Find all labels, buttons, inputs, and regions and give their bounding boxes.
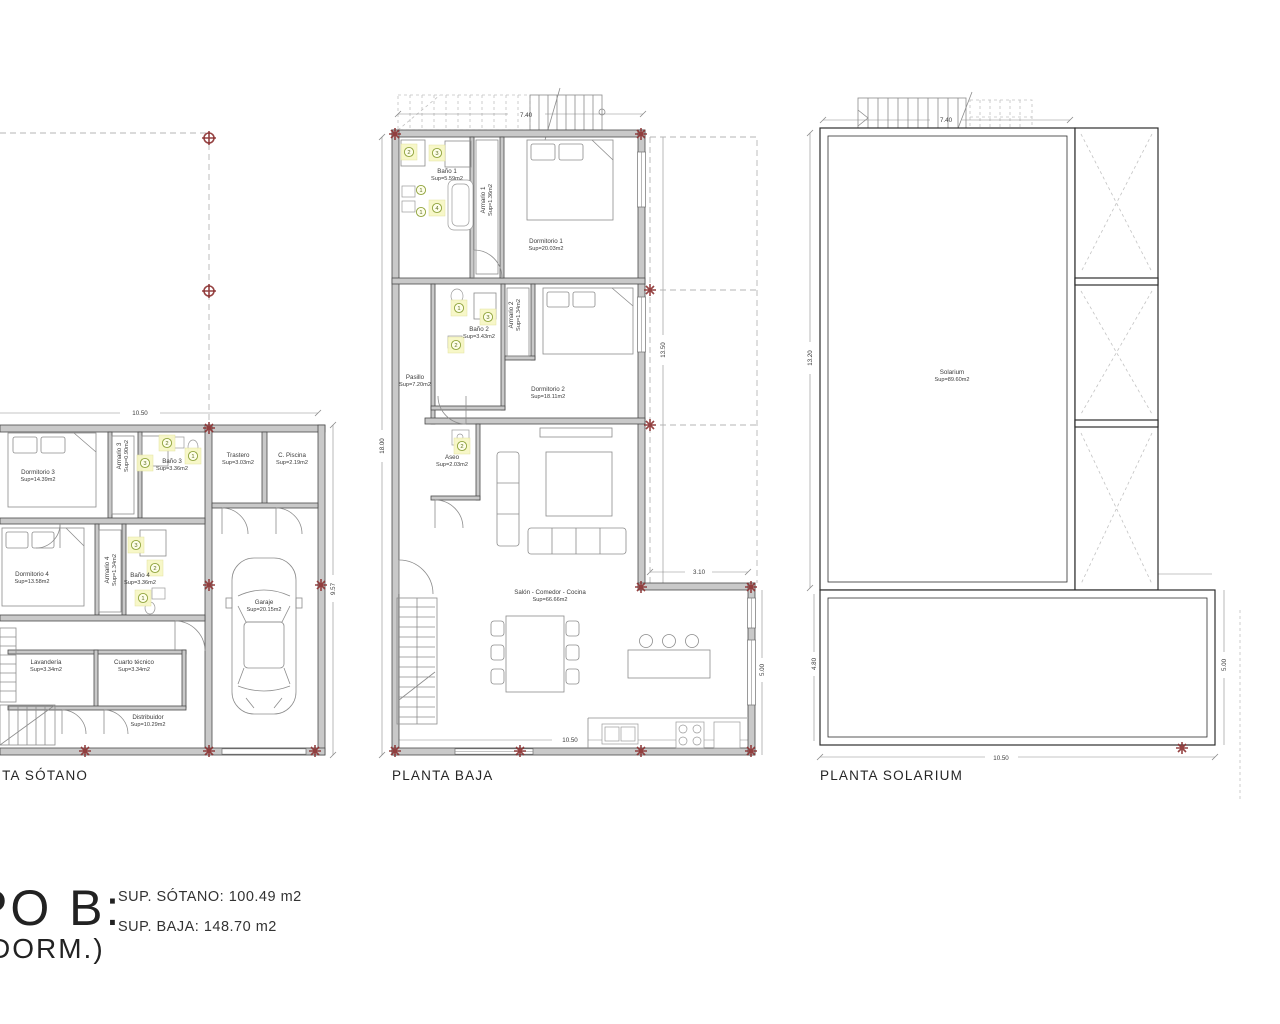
room-label: Dormitorio 2 xyxy=(531,386,565,393)
room-area: Sup=10.29m2 xyxy=(131,722,166,728)
room-label: C. Piscina xyxy=(278,452,306,459)
plan-sotano: 10.50 9.57 xyxy=(0,410,337,783)
room-area: Sup=2.19m2 xyxy=(276,460,308,466)
title-block: PO B: DORM.) SUP. SÓTANO: 100.49 m2 SUP.… xyxy=(0,880,302,964)
dim-label: 10.50 xyxy=(132,410,148,417)
dim-label: 7.40 xyxy=(940,117,953,124)
svg-text:1: 1 xyxy=(419,188,422,194)
pillar-icon xyxy=(644,284,656,296)
fixture-badge: 3 xyxy=(429,145,445,161)
bed-icon xyxy=(543,288,633,354)
dim-label: 10.50 xyxy=(562,737,578,744)
dim-label: 5.00 xyxy=(759,663,766,676)
fixture-badge: 1 xyxy=(135,590,151,606)
floorplan-drawing: 10.50 9.57 xyxy=(0,0,1280,1024)
svg-text:2: 2 xyxy=(407,150,410,156)
dim-label: 13.50 xyxy=(660,342,667,358)
room-area: Sup=3.34m2 xyxy=(118,667,150,673)
dim-baja-porch-width: 3.10 xyxy=(647,569,751,576)
sup-baja-text: SUP. BAJA: 148.70 m2 xyxy=(118,919,277,935)
fixture-badge: 1 xyxy=(451,300,467,316)
fixture-badge: 3 xyxy=(480,309,496,325)
plan-title-sotano: PLANTA SÓTANO xyxy=(0,768,88,783)
fixture-badge: 1 xyxy=(416,207,425,216)
plan-title-solarium: PLANTA SOLARIUM xyxy=(820,768,963,783)
room-label: Aseo xyxy=(445,454,460,461)
svg-text:1: 1 xyxy=(141,596,144,602)
dim-label: 3.10 xyxy=(693,569,706,576)
dim-baja-top: 7.40 xyxy=(395,111,646,119)
svg-text:2: 2 xyxy=(454,343,457,349)
room-area: Sup=18.11m2 xyxy=(531,394,566,400)
room-label: Dormitorio 3 xyxy=(21,469,55,476)
room-area: Sup=1.34m2 xyxy=(112,554,118,586)
dim-sol-bottom: 10.50 xyxy=(817,754,1218,762)
room-label: Baño 1 xyxy=(437,168,457,175)
bed-icon xyxy=(2,528,84,606)
room-area: Sup=3.34m2 xyxy=(30,667,62,673)
room-area: Sup=66.66m2 xyxy=(533,597,568,603)
dim-sotano-width: 10.50 xyxy=(0,410,321,417)
room-area: Sup=0.90m2 xyxy=(124,440,130,472)
room-area: Sup=89.60m2 xyxy=(935,377,970,383)
room-area: Sup=3.43m2 xyxy=(463,334,495,340)
stairs-icon xyxy=(397,598,437,724)
model-subtitle: DORM.) xyxy=(0,933,105,964)
dim-label: 18.00 xyxy=(379,438,386,454)
room-label: Baño 3 xyxy=(162,458,182,465)
fixture-badge: 1 xyxy=(185,448,201,464)
svg-text:1: 1 xyxy=(419,210,422,216)
dim-baja-right: 13.50 xyxy=(660,137,667,583)
plan-title-baja: PLANTA BAJA xyxy=(392,768,493,783)
svg-text:1: 1 xyxy=(457,306,460,312)
room-area: Sup=3.03m2 xyxy=(222,460,254,466)
room-label: Armario 1 xyxy=(480,186,487,213)
dim-sotano-height: 9.57 xyxy=(330,422,337,758)
stairs-icon xyxy=(0,628,55,745)
svg-text:1: 1 xyxy=(191,454,194,460)
room-area: Sup=20.03m2 xyxy=(529,246,564,252)
room-area: Sup=20.15m2 xyxy=(247,607,282,613)
fixture-badge: 1 xyxy=(416,185,425,194)
plan-baja: 7.40 18.00 13.50 3.10 5.00 10.50 xyxy=(379,88,766,783)
sofa-set-icon xyxy=(497,428,626,554)
room-area: Sup=1.36m2 xyxy=(488,184,494,216)
dim-label: 7.40 xyxy=(520,112,533,119)
room-area: Sup=14.39m2 xyxy=(21,477,56,483)
svg-text:3: 3 xyxy=(143,461,146,467)
room-label: Trastero xyxy=(227,452,250,459)
svg-text:2: 2 xyxy=(460,444,463,450)
svg-text:3: 3 xyxy=(134,543,137,549)
room-label: Dormitorio 4 xyxy=(15,571,49,578)
sup-sotano-text: SUP. SÓTANO: 100.49 m2 xyxy=(118,888,302,905)
fixture-badge: 2 xyxy=(454,438,470,454)
room-area: Sup=1.34m2 xyxy=(516,299,522,331)
dim-sol-lower-left: 4.80 xyxy=(811,594,818,741)
bed-icon xyxy=(527,140,613,220)
fixture-badge: 2 xyxy=(159,435,175,451)
room-area: Sup=7.20m2 xyxy=(399,382,431,388)
dim-label: 10.50 xyxy=(993,755,1009,762)
dim-label: 13.20 xyxy=(807,350,814,366)
svg-text:3: 3 xyxy=(486,315,489,321)
dim-label: 9.57 xyxy=(330,582,337,595)
room-label: Solarium xyxy=(940,369,964,376)
dim-baja-porch-height: 5.00 xyxy=(759,590,766,755)
room-label: Dormitorio 1 xyxy=(529,238,563,245)
room-label: Armario 3 xyxy=(116,442,123,469)
dim-baja-left: 18.00 xyxy=(379,134,386,758)
dim-label: 4.80 xyxy=(811,657,818,670)
room-area: Sup=3.36m2 xyxy=(124,580,156,586)
room-label: Baño 4 xyxy=(130,572,150,579)
datum-marker-icon xyxy=(202,284,216,298)
car-icon xyxy=(226,558,302,714)
room-area: Sup=3.36m2 xyxy=(156,466,188,472)
garage-door xyxy=(222,749,306,754)
porch-projection xyxy=(650,137,757,583)
svg-text:2: 2 xyxy=(165,441,168,447)
fixture-badge: 2 xyxy=(401,144,417,160)
fixture-badge: 4 xyxy=(429,200,445,216)
fixture-badge: 3 xyxy=(128,537,144,553)
room-label: Pasillo xyxy=(406,374,425,381)
room-label: Armario 4 xyxy=(104,556,111,583)
dim-label: 5.00 xyxy=(1221,658,1228,671)
room-label: Lavandería xyxy=(31,659,63,666)
plan-solarium: 7.40 13.20 13.00 3.10 4.80 5.00 10.50 xyxy=(807,92,1240,800)
baja-walls xyxy=(392,130,755,755)
dim-sol-left: 13.20 xyxy=(807,130,814,591)
room-label: Garaje xyxy=(255,599,274,606)
kitchen-counter-icon xyxy=(588,718,747,748)
pillar-icon xyxy=(644,419,656,431)
fixture-badge: 3 xyxy=(137,455,153,471)
solarium-walls xyxy=(820,128,1215,745)
dim-sol-lower-right: 5.00 xyxy=(1221,590,1228,745)
room-area: Sup=2.03m2 xyxy=(436,462,468,468)
room-label: Armario 2 xyxy=(508,301,515,328)
room-label: Distribuidor xyxy=(132,714,163,721)
room-area: Sup=5.59m2 xyxy=(431,176,463,182)
svg-text:2: 2 xyxy=(153,566,156,572)
room-label: Baño 2 xyxy=(469,326,489,333)
room-label: Salón - Comedor - Cocina xyxy=(514,589,586,596)
room-label: Cuarto técnico xyxy=(114,659,154,666)
projection-lines xyxy=(0,131,216,425)
fixture-badge: 2 xyxy=(448,337,464,353)
kitchen-island-icon xyxy=(628,635,710,679)
svg-text:3: 3 xyxy=(435,151,438,157)
model-title: PO B: xyxy=(0,880,122,936)
room-area: Sup=13.58m2 xyxy=(15,579,50,585)
dining-table-icon xyxy=(491,616,579,692)
